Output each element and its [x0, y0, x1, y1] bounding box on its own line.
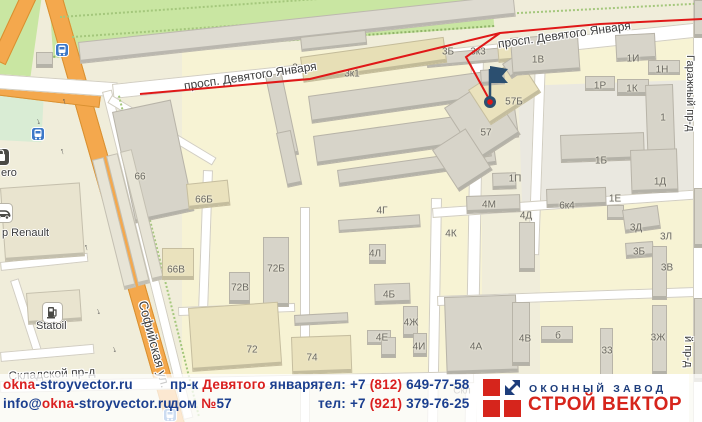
building-label: 66В	[167, 265, 185, 276]
address-line2: дом №57	[170, 396, 232, 411]
transit-stop-icon[interactable]	[55, 43, 69, 57]
footer-text-segment: 57	[216, 396, 231, 411]
building-label: 4В	[519, 334, 531, 345]
poi-label: р Renault	[2, 227, 49, 239]
footer-text-segment: пр-к	[170, 377, 202, 392]
logo-text-line2: СТРОЙ ВЕКТОР	[528, 394, 682, 416]
building-label: 3к1	[344, 69, 360, 80]
footer-text-segment: -stroyvector.ru	[35, 377, 133, 392]
street-label: Гаражный пр-д	[684, 55, 696, 131]
footer-text-segment: okna	[42, 396, 74, 411]
building-label: 4А	[470, 342, 482, 353]
footer-text-segment: тел: +7	[318, 396, 370, 411]
building-label: 66	[134, 172, 145, 183]
building-label: 3Д	[630, 223, 642, 234]
building-label: 3Б	[442, 47, 454, 58]
building	[694, 188, 702, 248]
footer-text-segment: info@	[3, 396, 42, 411]
building-label: 33	[601, 346, 612, 357]
footer-text-segment: тел: +7	[318, 377, 370, 392]
phone-line1: тел: +7 (812) 649-77-58	[318, 377, 470, 392]
poi-label: ero	[1, 167, 17, 179]
footer-text-segment: Девятого	[202, 377, 265, 392]
building-label: 4Л	[369, 249, 381, 260]
logo-squares-icon	[483, 379, 521, 417]
building	[546, 187, 607, 208]
building-label: 4Д	[520, 211, 532, 222]
phone-line2: тел: +7 (921) 379-76-25	[318, 396, 470, 411]
building-label: 3Б	[633, 247, 645, 258]
lane-arrow-icon: ↓	[95, 306, 102, 317]
building-label: 57Б	[505, 97, 523, 108]
website-link[interactable]: okna-stroyvector.ru	[3, 377, 133, 392]
building	[188, 302, 282, 372]
map-canvas[interactable]: 3Б3к333к11В1И1Н1Р1К57Б5711Б1П1Д1Е4М6к44Г…	[0, 0, 702, 422]
building-label: 66Б	[195, 195, 213, 206]
building-label: 3В	[661, 263, 673, 274]
poi-label: Statoil	[36, 320, 67, 332]
building	[291, 335, 352, 375]
building-label: 1	[660, 113, 666, 124]
building-label: 4Г	[377, 206, 388, 217]
building	[694, 0, 702, 38]
footer-text-segment: №	[201, 396, 216, 411]
transit-stop-icon[interactable]	[31, 127, 45, 141]
building-label: 4Е	[376, 333, 388, 344]
building-label: 1И	[627, 54, 640, 65]
building-label: 1В	[532, 55, 544, 66]
footer-text-segment: 379-76-25	[402, 396, 469, 411]
building	[480, 68, 505, 86]
footer-text-segment: 649-77-58	[402, 377, 469, 392]
building-label: 4Б	[383, 290, 395, 301]
building	[444, 294, 519, 374]
store-icon[interactable]	[0, 148, 10, 166]
building-label: 4Ж	[404, 318, 419, 329]
building-label: 72Б	[267, 264, 285, 275]
lane-arrow-icon: ↓	[111, 344, 118, 355]
street-label: й пр-д	[682, 336, 694, 367]
footer-text-segment: (921)	[370, 396, 403, 411]
footer-text-segment: (812)	[370, 377, 403, 392]
building-label: б	[555, 331, 561, 342]
footer-text-segment: января,	[266, 377, 323, 392]
building-label: 4И	[413, 342, 426, 353]
contact-footer: okna-stroyvector.ruпр-к Девятого января,…	[0, 374, 702, 422]
building-label: 1Б	[595, 156, 607, 167]
building-label: 1К	[626, 84, 637, 95]
building-label: 74	[306, 353, 317, 364]
footer-text-segment: дом	[170, 396, 201, 411]
building-label: 6к4	[559, 201, 575, 212]
lane-arrow-icon: ↑	[59, 146, 66, 157]
building-label: 3Л	[660, 232, 672, 243]
building-label: 3к3	[470, 47, 486, 58]
address-line1: пр-к Девятого января,	[170, 377, 322, 392]
building	[36, 52, 53, 68]
building-label: 3Ж	[651, 333, 666, 344]
building-label: 57	[480, 128, 491, 139]
building	[694, 298, 702, 382]
building-label: 72	[246, 345, 257, 356]
building-label: 1Р	[594, 81, 606, 92]
building-label: 4М	[482, 200, 496, 211]
footer-text-segment: -stroyvector.ru	[74, 396, 172, 411]
tree-line	[500, 3, 695, 15]
footer-text-segment: okna	[3, 377, 35, 392]
email-link[interactable]: info@okna-stroyvector.ru	[3, 396, 172, 411]
stroyvector-logo: ОКОННЫЙ ЗАВОД СТРОЙ ВЕКТОР	[477, 374, 689, 422]
logo-arrow-icon	[504, 379, 521, 396]
building	[519, 222, 535, 272]
building-label: 1Е	[609, 194, 621, 205]
building-label: 72В	[231, 283, 249, 294]
building-label: 1Д	[654, 177, 666, 188]
building-label: 4К	[445, 229, 456, 240]
building-label: 1Н	[656, 65, 669, 76]
building-label: 1П	[509, 174, 522, 185]
road-minor	[0, 344, 95, 362]
car-dealer-icon[interactable]	[0, 203, 13, 223]
